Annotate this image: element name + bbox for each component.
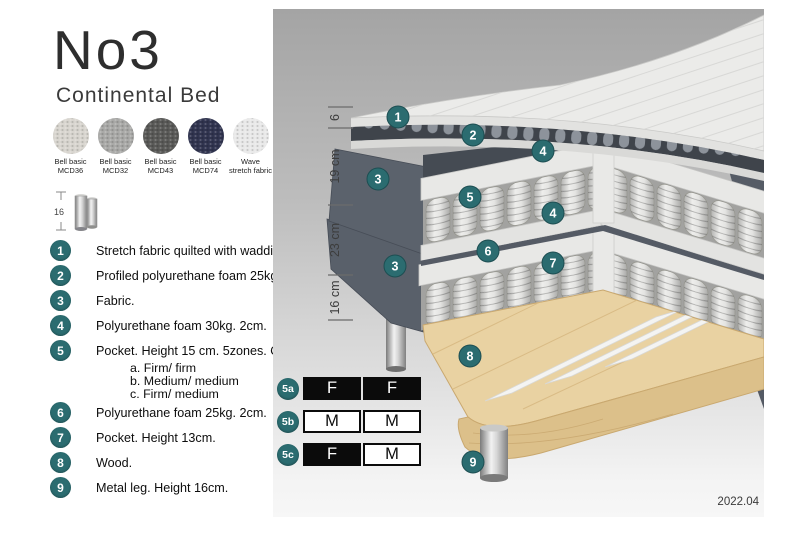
dim-label-base: 23 cm — [328, 223, 342, 257]
firmness-cell: M — [363, 443, 421, 466]
legend-item-3: 3Fabric. — [50, 290, 285, 311]
marker-3a: 3 — [367, 168, 389, 190]
legend-item-2: 2Profiled polyurethane foam 25kg. 4cm. — [50, 265, 285, 286]
marker-3b: 3 — [384, 255, 406, 277]
firmness-cell: M — [363, 410, 421, 433]
marker-2: 2 — [462, 124, 484, 146]
svg-text:7: 7 — [550, 257, 557, 271]
swatch-wave: Wavestretch fabric — [228, 118, 273, 175]
swatch-label: Bell basicMCD32 — [99, 158, 131, 175]
swatch-label: Bell basicMCD43 — [144, 158, 176, 175]
pocket-option-b: b. Medium/ medium — [130, 375, 285, 388]
firmness-cell: F — [363, 377, 421, 400]
legend-badge-4: 4 — [50, 315, 71, 336]
svg-text:4: 4 — [550, 207, 557, 221]
svg-text:1: 1 — [395, 111, 402, 125]
front-leg — [480, 425, 508, 483]
page-title: No3 — [53, 18, 163, 82]
spec-sheet: { "header": { "title": "No3", "subtitle"… — [0, 0, 800, 533]
legend-text: Pocket. Height 13cm. — [96, 431, 216, 445]
fabric-swatch-circle — [53, 118, 89, 154]
firmness-badge-5a: 5a — [277, 378, 299, 400]
legend-item-7: 7Pocket. Height 13cm. — [50, 427, 285, 448]
swatch-label: Wavestretch fabric — [229, 158, 272, 175]
firmness-row-5b: 5b M M — [277, 410, 421, 433]
swatch-label: Bell basicMCD74 — [189, 158, 221, 175]
pocket-options: a. Firm/ firm b. Medium/ medium c. Firm/… — [130, 362, 285, 400]
legend-text: Polyurethane foam 30kg. 2cm. — [96, 319, 267, 333]
marker-6: 6 — [477, 240, 499, 262]
marker-7: 7 — [542, 252, 564, 274]
dim-label-mattress: 19 cm — [328, 149, 342, 183]
version-date: 2022.04 — [717, 496, 759, 508]
bed-cutaway-illustration: 6 19 cm 23 cm 16 cm 1 2 4 3 5 4 6 7 3 8 … — [273, 9, 764, 517]
svg-text:5: 5 — [467, 191, 474, 205]
legend-text: Fabric. — [96, 294, 135, 308]
legend-item-6: 6Polyurethane foam 25kg. 2cm. — [50, 402, 285, 423]
swatch-mcd74: Bell basicMCD74 — [183, 118, 228, 175]
dim-label-leg: 16 cm — [328, 280, 342, 314]
legend-badge-9: 9 — [50, 477, 71, 498]
page-subtitle: Continental Bed — [56, 84, 220, 108]
svg-text:8: 8 — [467, 350, 474, 364]
legend-badge-7: 7 — [50, 427, 71, 448]
marker-8: 8 — [459, 345, 481, 367]
swatch-mcd36: Bell basicMCD36 — [48, 118, 93, 175]
svg-text:3: 3 — [392, 260, 399, 274]
svg-text:4: 4 — [540, 145, 547, 159]
marker-5: 5 — [459, 186, 481, 208]
fabric-swatch-circle — [98, 118, 134, 154]
firmness-row-5c: 5c F M — [277, 443, 421, 466]
swatch-mcd32: Bell basicMCD32 — [93, 118, 138, 175]
illustration-panel: 6 19 cm 23 cm 16 cm 1 2 4 3 5 4 6 7 3 8 … — [273, 9, 764, 517]
fabric-swatch-circle — [143, 118, 179, 154]
fabric-swatches: Bell basicMCD36 Bell basicMCD32 Bell bas… — [48, 118, 273, 175]
legend-badge-3: 3 — [50, 290, 71, 311]
parts-legend: 1Stretch fabric quilted with wadding. 2P… — [50, 240, 285, 502]
pocket-option-c: c. Firm/ medium — [130, 388, 285, 401]
svg-text:3: 3 — [375, 173, 382, 187]
fabric-swatch-circle — [188, 118, 224, 154]
legend-item-1: 1Stretch fabric quilted with wadding. — [50, 240, 285, 261]
legend-text: Wood. — [96, 456, 132, 470]
legend-badge-1: 1 — [50, 240, 71, 261]
marker-4b: 4 — [542, 202, 564, 224]
svg-text:2: 2 — [470, 129, 477, 143]
firmness-cell: F — [303, 443, 361, 466]
legend-badge-5: 5 — [50, 340, 71, 361]
dim-label-topper: 6 — [328, 114, 342, 121]
firmness-cell: F — [303, 377, 361, 400]
firmness-badge-5b: 5b — [277, 411, 299, 433]
svg-text:9: 9 — [470, 456, 477, 470]
legend-item-4: 4Polyurethane foam 30kg. 2cm. — [50, 315, 285, 336]
legend-text: Stretch fabric quilted with wadding. — [96, 244, 291, 258]
legend-item-9: 9Metal leg. Height 16cm. — [50, 477, 285, 498]
rear-leg — [386, 319, 406, 372]
marker-9: 9 — [462, 451, 484, 473]
pocket-option-a: a. Firm/ firm — [130, 362, 285, 375]
firmness-badge-5c: 5c — [277, 444, 299, 466]
marker-4a: 4 — [532, 140, 554, 162]
leg-height-label: 16 — [54, 207, 64, 217]
legend-badge-2: 2 — [50, 265, 71, 286]
fabric-swatch-circle — [233, 118, 269, 154]
legend-badge-6: 6 — [50, 402, 71, 423]
legend-text: Polyurethane foam 25kg. 2cm. — [96, 406, 267, 420]
legend-text: Metal leg. Height 16cm. — [96, 481, 228, 495]
firmness-cell: M — [303, 410, 361, 433]
swatch-mcd43: Bell basicMCD43 — [138, 118, 183, 175]
swatch-label: Bell basicMCD36 — [54, 158, 86, 175]
firmness-row-5a: 5a F F — [277, 377, 421, 400]
marker-1: 1 — [387, 106, 409, 128]
leg-height-icon: 16 — [50, 186, 110, 236]
legend-item-8: 8Wood. — [50, 452, 285, 473]
legend-item-5: 5Pocket. Height 15 cm. 5zones. Option: — [50, 340, 285, 361]
svg-text:6: 6 — [485, 245, 492, 259]
legend-badge-8: 8 — [50, 452, 71, 473]
